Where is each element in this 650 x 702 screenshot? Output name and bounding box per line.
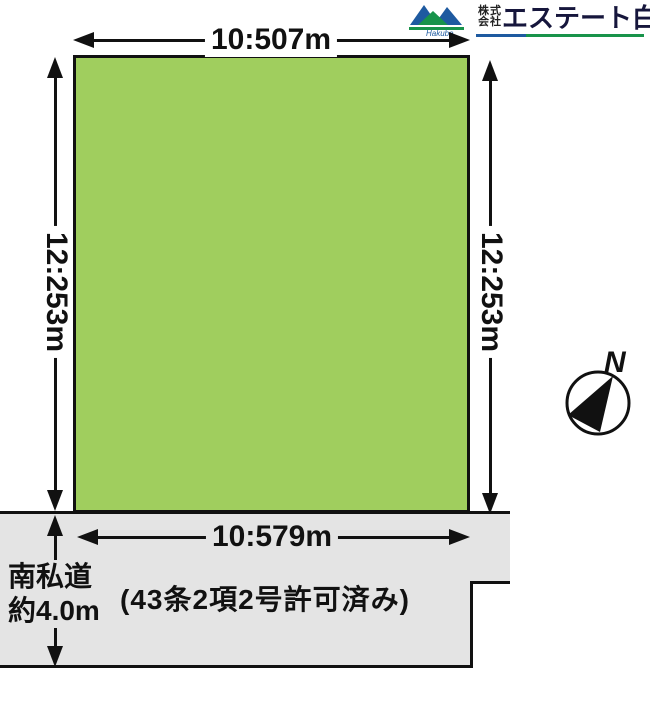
top-dim-label: 10:507m: [205, 23, 337, 57]
bottom-dim-arrow-left: [77, 529, 98, 545]
road-width-value: 約4.0m: [8, 594, 100, 628]
logo-prefix-line2: 会社: [478, 17, 502, 28]
road-name-label: 南私道 約4.0m: [6, 560, 102, 628]
left-dim-arrow-down: [47, 490, 63, 511]
road-width-arrow-down: [47, 646, 63, 667]
company-logo: Hakuba 株式 会社 エステート白馬: [406, 1, 644, 39]
right-dim-arrow-down: [482, 493, 498, 514]
bottom-dim-label: 10:579m: [206, 520, 338, 554]
logo-company-name: エステート白馬: [502, 3, 650, 33]
road-bottom-border: [0, 665, 473, 668]
left-dim-label: 12:253m: [39, 226, 73, 358]
compass-north-label: N: [604, 346, 627, 379]
road-name: 南私道: [8, 560, 100, 594]
right-dim-label: 12:253m: [474, 226, 508, 358]
road-right-border: [470, 581, 473, 668]
compass-north-icon: N: [558, 346, 642, 446]
land-plot: [73, 55, 470, 513]
top-dim-arrow-left: [73, 32, 94, 48]
road-permit-note: (43条2項2号許可済み): [120, 578, 410, 618]
logo-underline-green: [526, 34, 644, 37]
bottom-dim-arrow-right: [449, 529, 470, 545]
top-dim-arrow-right: [449, 32, 470, 48]
road-step-border: [470, 581, 510, 584]
logo-underline-blue: [476, 34, 526, 37]
land-plot-diagram: Hakuba 株式 会社 エステート白馬 10:507m 12:253m 12:…: [0, 0, 650, 702]
logo-company-prefix: 株式 会社: [478, 6, 502, 28]
